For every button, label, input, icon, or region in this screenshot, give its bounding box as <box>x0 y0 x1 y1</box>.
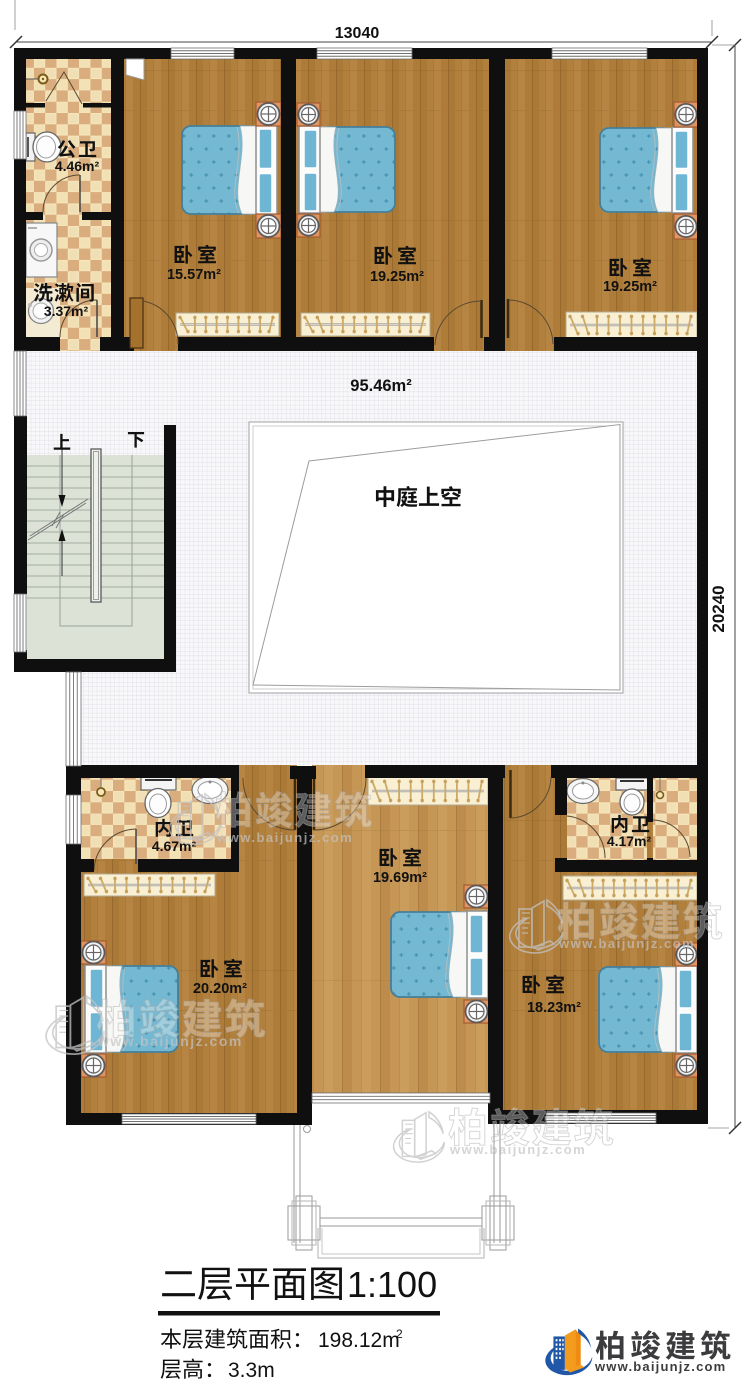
svg-text:15.57m²: 15.57m² <box>167 267 221 283</box>
svg-text:3.37m²: 3.37m² <box>44 303 89 319</box>
svg-text:3.3m: 3.3m <box>228 1359 275 1382</box>
svg-text:www.baijunjz.com: www.baijunjz.com <box>594 1359 726 1374</box>
svg-text:www.baijunjz.com: www.baijunjz.com <box>97 1033 243 1049</box>
svg-text:13040: 13040 <box>335 25 380 42</box>
svg-text:198.12m: 198.12m <box>318 1329 400 1352</box>
svg-text:19.25m²: 19.25m² <box>370 269 424 285</box>
svg-text:www.baijunjz.com: www.baijunjz.com <box>216 830 353 845</box>
svg-text:www.baijunjz.com: www.baijunjz.com <box>558 936 695 951</box>
svg-text:www.baijunjz.com: www.baijunjz.com <box>449 1142 586 1157</box>
svg-text:20240: 20240 <box>709 585 728 632</box>
svg-text:4.46m²: 4.46m² <box>55 158 100 174</box>
svg-text:2: 2 <box>396 1327 403 1341</box>
svg-text:4.17m²: 4.17m² <box>607 833 652 849</box>
svg-text:18.23m²: 18.23m² <box>527 1000 581 1016</box>
svg-text:19.25m²: 19.25m² <box>603 279 657 295</box>
svg-text:20.20m²: 20.20m² <box>193 981 247 997</box>
svg-text:19.69m²: 19.69m² <box>373 870 427 886</box>
svg-text:4.67m²: 4.67m² <box>152 838 197 854</box>
svg-text:1:100: 1:100 <box>347 1264 437 1305</box>
svg-text:95.46m²: 95.46m² <box>350 377 412 395</box>
